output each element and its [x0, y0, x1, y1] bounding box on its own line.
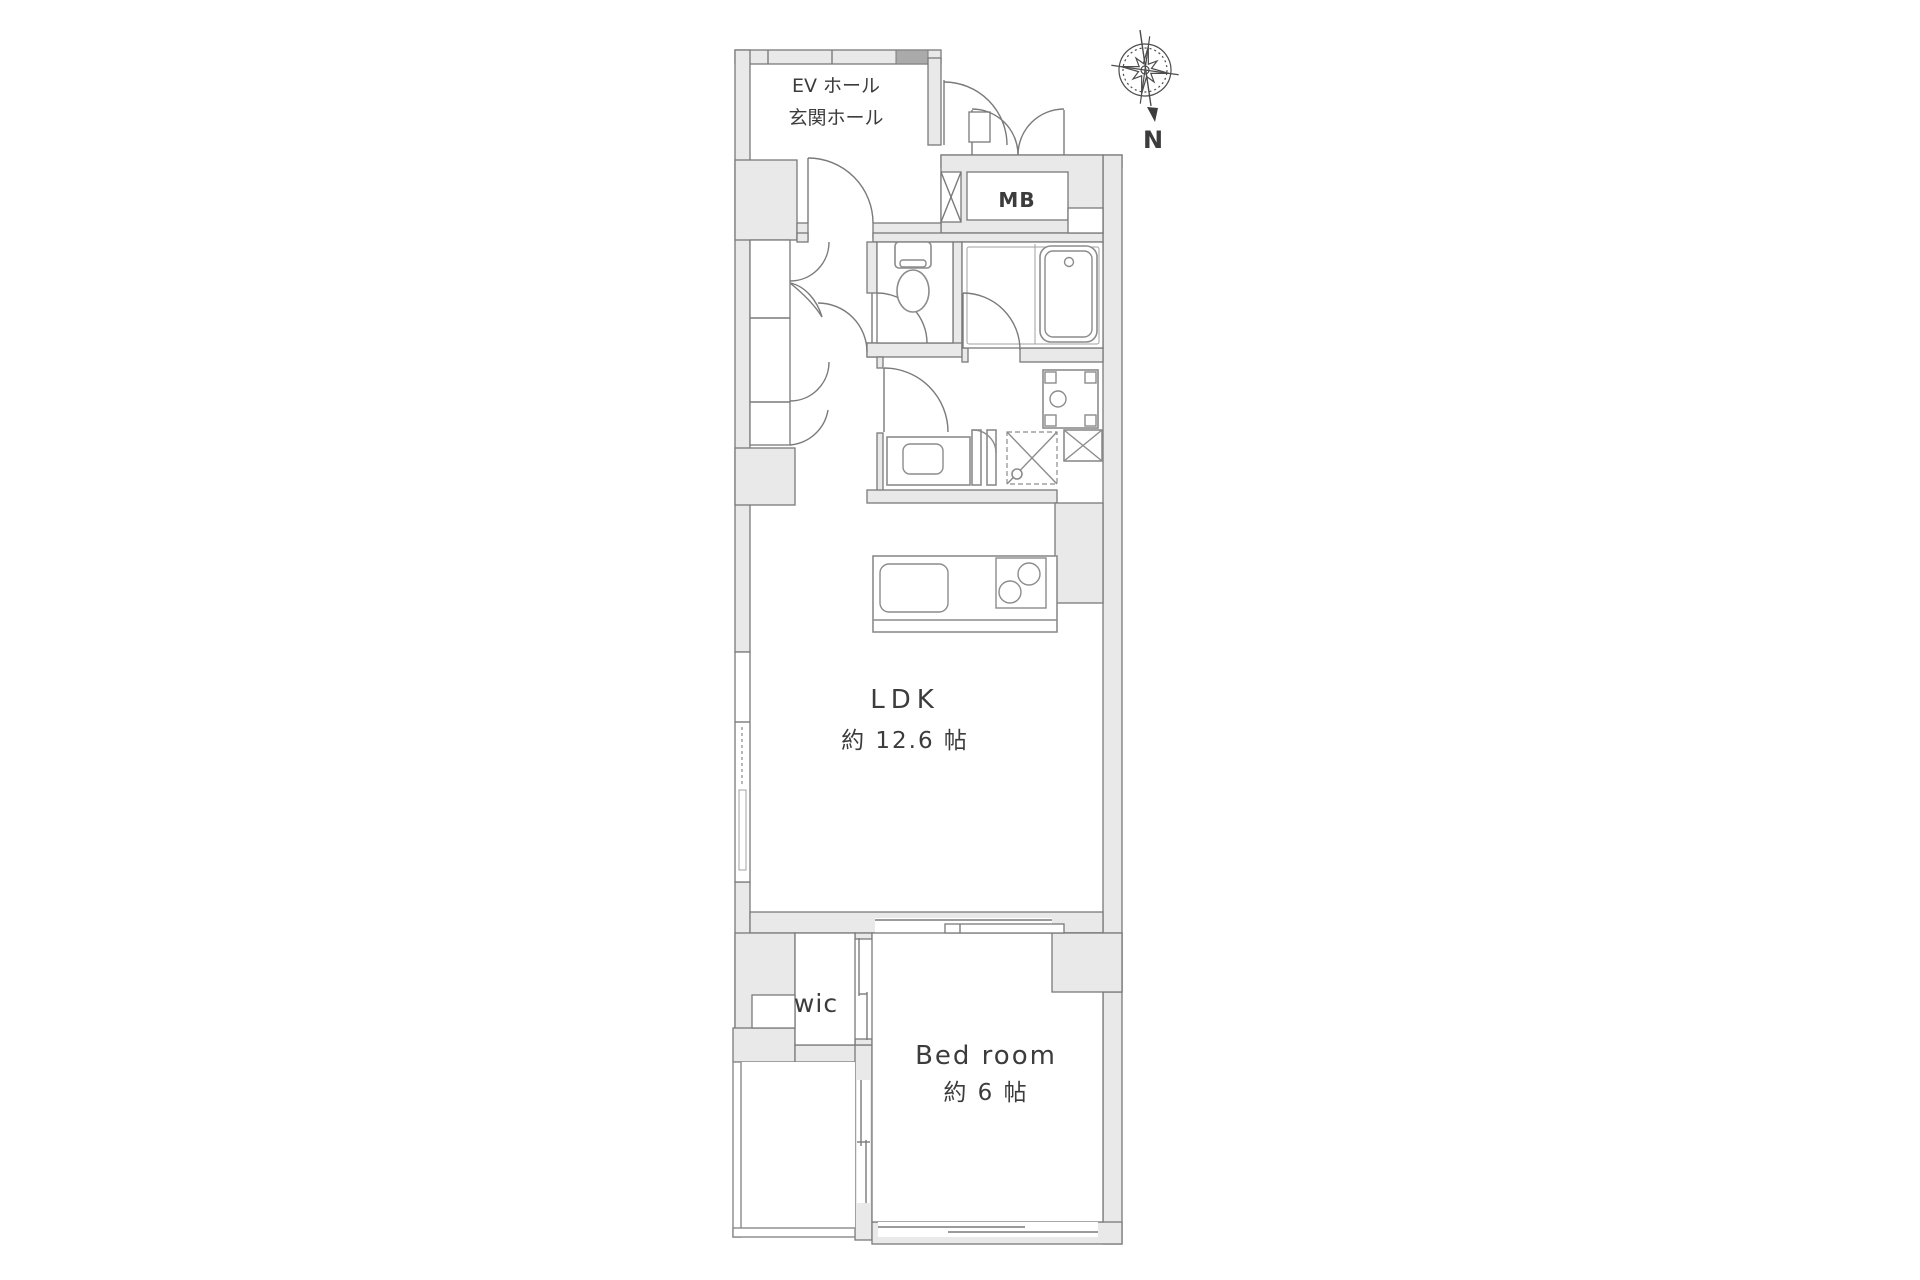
washing-machine-pan: [1007, 432, 1057, 484]
entrance-hall-label: 玄関ホール: [788, 107, 883, 129]
bedroom-label: Bed room: [915, 1041, 1057, 1071]
wic-sliding-door: [859, 938, 867, 1040]
bedroom-bottom-window: [878, 1222, 1098, 1237]
ldk-label: LDK: [870, 685, 940, 715]
closet-folding-doors: [790, 242, 867, 445]
washroom-door: [884, 368, 948, 432]
kitchen-counter: [873, 556, 1057, 632]
washbasin-fixture: [887, 430, 996, 485]
meter-box-label: MB: [998, 188, 1035, 212]
floor-plan-page: EV ホール 玄関ホール MB LDK 約 12.6 帖 wic Bed roo…: [0, 0, 1920, 1280]
wic-label: wic: [794, 989, 838, 1018]
duct-box: [1064, 430, 1102, 461]
floor-plan-drawing: EV ホール 玄関ホール MB LDK 約 12.6 帖 wic Bed roo…: [0, 0, 1920, 1280]
bathtub-fixture: [1040, 246, 1097, 342]
toilet-fixture: [895, 242, 931, 312]
unit-entrance-door: [808, 158, 873, 223]
north-arrow-icon: [1147, 107, 1158, 122]
balcony: [741, 1062, 855, 1228]
wic-nook: [752, 995, 795, 1028]
hall-closet: [750, 240, 790, 445]
utility-sink-fixture: [1043, 370, 1098, 428]
meter-box-doors: [969, 109, 1064, 155]
ldk-window: [735, 652, 750, 882]
north-label: N: [1143, 126, 1163, 154]
compass-icon: [1107, 30, 1184, 122]
ldk-area-label: 約 12.6 帖: [841, 728, 969, 754]
ev-hall-label: EV ホール: [792, 75, 880, 97]
bedroom-area-label: 約 6 帖: [943, 1080, 1028, 1106]
